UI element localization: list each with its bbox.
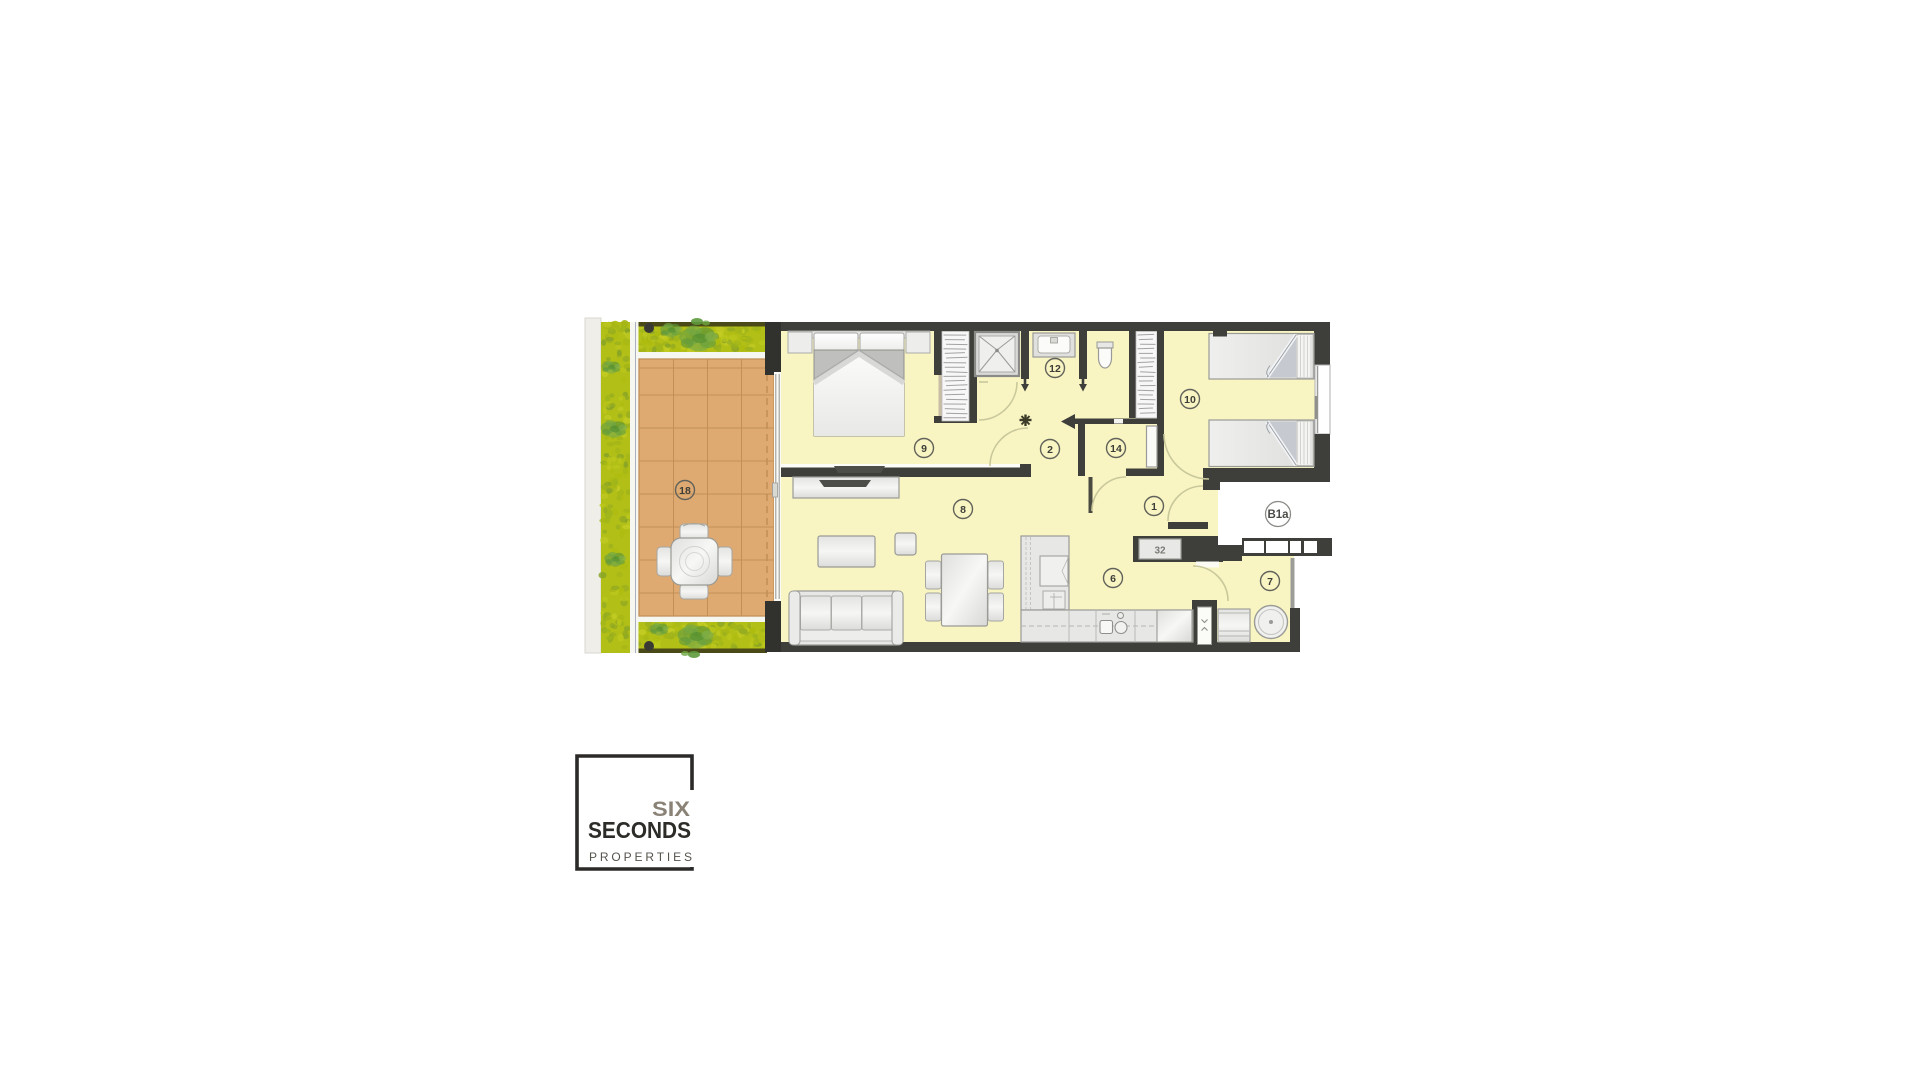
- svg-text:32: 32: [1154, 546, 1166, 557]
- svg-text:PROPERTIES: PROPERTIES: [589, 850, 692, 864]
- svg-text:9: 9: [921, 443, 927, 455]
- svg-text:7: 7: [1267, 576, 1273, 588]
- svg-text:1: 1: [1151, 501, 1157, 513]
- svg-text:10: 10: [1184, 394, 1196, 406]
- svg-text:B1a: B1a: [1267, 509, 1289, 521]
- svg-text:18: 18: [679, 485, 691, 497]
- svg-text:12: 12: [1049, 363, 1061, 375]
- svg-text:SECONDS: SECONDS: [588, 817, 691, 843]
- svg-text:14: 14: [1110, 443, 1122, 455]
- svg-text:2: 2: [1047, 444, 1053, 456]
- svg-text:8: 8: [960, 504, 966, 516]
- svg-text:6: 6: [1110, 573, 1116, 585]
